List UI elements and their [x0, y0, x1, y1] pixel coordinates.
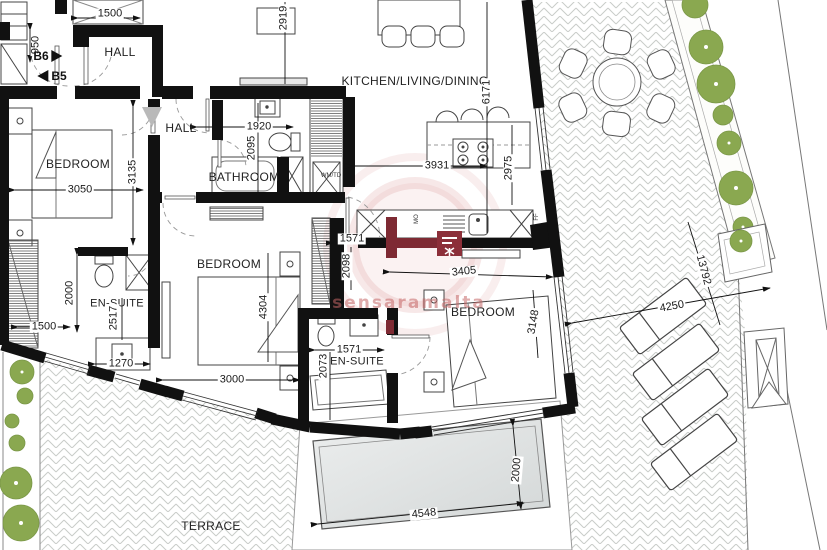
laundry-closet	[310, 96, 343, 200]
dim-1920: 1920	[245, 122, 273, 133]
entry-arrow-icon	[142, 107, 162, 127]
dim-2095: 2095	[247, 134, 258, 162]
dim-1270: 1270	[107, 359, 135, 370]
sink-icon	[255, 98, 280, 117]
nightstand	[280, 366, 300, 390]
appliance-label-ff: FF	[534, 213, 540, 220]
appliance-label-mo: MO	[414, 214, 420, 224]
sink-icon	[469, 214, 488, 235]
toilet-icon	[318, 317, 335, 346]
chair-icon	[440, 26, 464, 47]
chair-icon	[382, 26, 406, 47]
outdoor-stairs	[744, 328, 788, 408]
dining-table	[378, 0, 464, 47]
appliance-label-wmtd: WM/TD	[321, 173, 341, 179]
unit-label-b5: B5	[35, 70, 68, 82]
room-label-terrace: TERRACE	[179, 520, 242, 532]
dim-2975: 2975	[504, 154, 515, 182]
bed-icon	[32, 130, 112, 218]
stool-icon	[487, 107, 509, 118]
dim-2000-left: 2000	[65, 279, 76, 307]
outdoor-planter-box	[718, 224, 772, 282]
room-label-bathroom: BATHROOM	[207, 171, 282, 183]
dim-1500-left: 1500	[30, 322, 58, 333]
chair-icon	[411, 26, 435, 47]
console	[162, 282, 170, 358]
dim-3000: 3000	[218, 375, 246, 386]
room-label-bedroom-mid: BEDROOM	[195, 258, 263, 270]
toilet-icon	[95, 256, 113, 287]
bedroom-left-furniture	[8, 108, 112, 348]
ensuite-left-suite	[95, 255, 152, 370]
room-label-ensuite-mid: EN-SUITE	[328, 357, 386, 368]
watermark-mark-icon	[437, 231, 462, 256]
floor-plan: sensaramalta 1500 950 HALL B6 B5 2919 KI…	[0, 0, 827, 550]
room-label-kitchen: KITCHEN/LIVING/DINING	[340, 75, 491, 87]
room-label-bedroom-left: BEDROOM	[44, 158, 112, 170]
arrow-right-icon	[52, 50, 63, 62]
room-label-hall-top: HALL	[102, 46, 137, 58]
room-label-hall-mid: HALL	[163, 122, 198, 134]
dim-4304: 4304	[259, 293, 270, 321]
nightstand	[280, 252, 300, 276]
dim-2517: 2517	[109, 304, 120, 332]
stool-icon	[436, 111, 458, 122]
bush-icon	[0, 360, 39, 541]
dim-3135: 3135	[128, 158, 139, 186]
sideboard	[240, 78, 307, 85]
dim-3050: 3050	[66, 185, 94, 196]
arrow-left-icon	[37, 70, 48, 82]
room-label-bedroom-right: BEDROOM	[449, 306, 517, 318]
left-planting-strip	[0, 352, 40, 550]
stool-icon	[461, 109, 483, 120]
unit-b6-text: B6	[33, 50, 48, 62]
console	[462, 250, 520, 258]
toilet-icon	[269, 133, 300, 151]
wardrobe-icon	[210, 207, 263, 220]
dim-3931: 3931	[423, 161, 451, 172]
nightstand	[424, 372, 444, 392]
dim-1571-b: 1571	[335, 345, 363, 356]
nightstand	[8, 108, 32, 134]
bed-icon	[198, 277, 300, 365]
dim-2098: 2098	[342, 252, 353, 280]
dim-1571-a: 1571	[338, 234, 366, 245]
dim-6171: 6171	[482, 78, 493, 106]
dim-2919: 2919	[279, 4, 290, 32]
dim-1500-top: 1500	[96, 9, 124, 20]
lobby-units	[1, 2, 27, 84]
unit-label-b6: B6	[31, 50, 64, 62]
unit-b5-text: B5	[51, 70, 66, 82]
